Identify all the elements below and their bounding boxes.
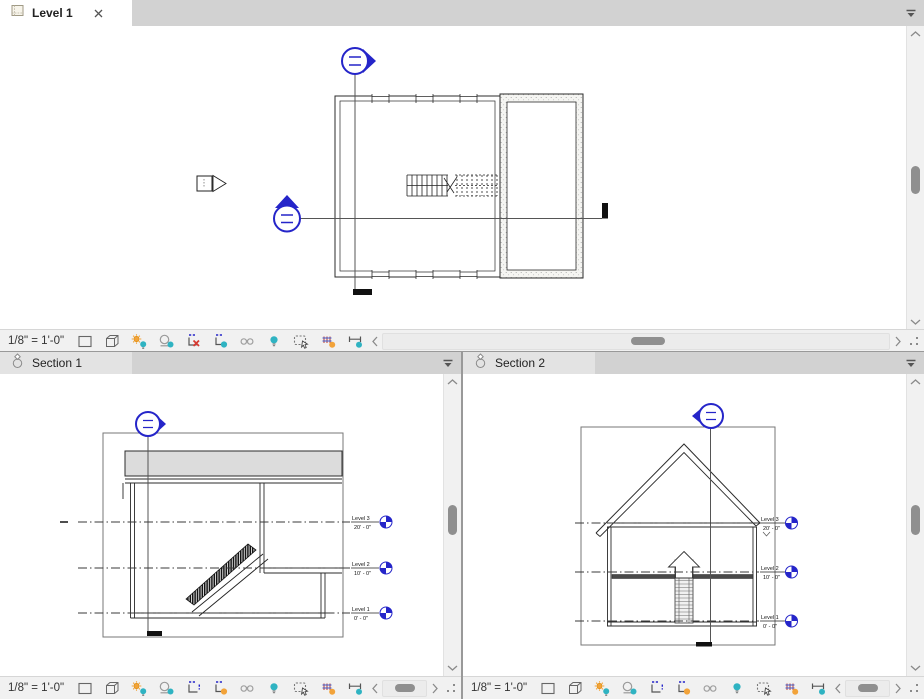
close-tab-icon[interactable] bbox=[94, 9, 103, 18]
svg-text:0' - 0": 0' - 0" bbox=[763, 624, 777, 630]
tab-section-1[interactable]: Section 1 bbox=[0, 352, 132, 374]
tab-section-2[interactable]: Section 2 bbox=[463, 352, 595, 374]
scroll-thumb[interactable] bbox=[448, 505, 457, 535]
scroll-thumb[interactable] bbox=[631, 337, 665, 345]
scroll-up-icon[interactable] bbox=[907, 26, 924, 42]
plan-canvas[interactable] bbox=[0, 26, 906, 330]
show-crop-region-icon[interactable] bbox=[211, 680, 230, 697]
scroll-thumb[interactable] bbox=[911, 505, 920, 535]
pane-collapse-icon[interactable] bbox=[898, 352, 924, 374]
scroll-thumb[interactable] bbox=[395, 684, 415, 692]
sun-path-icon[interactable] bbox=[130, 333, 149, 350]
pane-collapse-icon[interactable] bbox=[898, 0, 924, 26]
crop-view-icon[interactable] bbox=[647, 680, 666, 697]
scroll-up-icon[interactable] bbox=[907, 374, 924, 390]
show-crop-region-icon[interactable] bbox=[211, 333, 230, 350]
section-line[interactable] bbox=[696, 428, 712, 647]
scroll-track[interactable] bbox=[845, 680, 890, 697]
vertical-scrollbar[interactable] bbox=[906, 26, 924, 330]
section2-stair[interactable] bbox=[669, 552, 700, 624]
scroll-thumb[interactable] bbox=[858, 684, 878, 692]
horizontal-scrollbar[interactable] bbox=[830, 680, 905, 697]
section1-canvas[interactable]: Level 3 20' - 0" Level 2 10' - 0" Level … bbox=[0, 374, 444, 676]
resize-grip[interactable] bbox=[445, 682, 458, 695]
sun-path-icon[interactable] bbox=[130, 680, 149, 697]
pane-collapse-icon[interactable] bbox=[435, 352, 461, 374]
show-crop-region-icon[interactable] bbox=[674, 680, 693, 697]
visual-style-icon[interactable] bbox=[103, 680, 122, 697]
scroll-track[interactable] bbox=[382, 680, 427, 697]
visual-style-icon[interactable] bbox=[103, 333, 122, 350]
plan-windows-bottom[interactable] bbox=[372, 270, 477, 279]
reveal-constraints-icon[interactable] bbox=[809, 680, 828, 697]
temporary-hide-isolate-icon[interactable] bbox=[238, 680, 257, 697]
shadows-icon[interactable] bbox=[157, 680, 176, 697]
section-marker[interactable] bbox=[692, 404, 723, 428]
reveal-hidden-elements-icon[interactable] bbox=[265, 333, 284, 350]
scroll-left-icon[interactable] bbox=[367, 681, 382, 696]
detail-level-icon[interactable] bbox=[76, 333, 95, 350]
section2-canvas[interactable]: Level 3 20' - 0" Level 2 10' - 0" Level … bbox=[463, 374, 907, 676]
tab-bar-section2: Section 2 bbox=[463, 352, 924, 375]
vcb-icons-section2 bbox=[539, 680, 828, 697]
view-control-bar-plan: 1/8" = 1'-0" bbox=[0, 329, 924, 352]
tab-level-1[interactable]: Level 1 bbox=[0, 0, 132, 26]
pane-section-1: Section 1 bbox=[0, 352, 461, 699]
scroll-down-icon[interactable] bbox=[444, 660, 461, 676]
horizontal-scrollbar[interactable] bbox=[367, 680, 442, 697]
view-scale-button[interactable]: 1/8" = 1'-0" bbox=[471, 682, 527, 694]
reveal-hidden-elements-icon[interactable] bbox=[265, 680, 284, 697]
section1-stair[interactable] bbox=[186, 544, 268, 616]
view-scale-button[interactable]: 1/8" = 1'-0" bbox=[8, 682, 64, 694]
plan-building[interactable] bbox=[335, 94, 583, 278]
level-datum-1[interactable]: Level 1 0' - 0" bbox=[78, 607, 392, 622]
section-marker-icon bbox=[473, 353, 488, 374]
scroll-right-icon[interactable] bbox=[890, 681, 905, 696]
analytical-model-icon[interactable] bbox=[319, 333, 338, 350]
detail-level-icon[interactable] bbox=[76, 680, 95, 697]
svg-text:10' - 0": 10' - 0" bbox=[763, 575, 780, 581]
scroll-down-icon[interactable] bbox=[907, 660, 924, 676]
shadows-icon[interactable] bbox=[620, 680, 639, 697]
revit-view-workspace: Level 1 bbox=[0, 0, 924, 699]
svg-text:Level 2: Level 2 bbox=[761, 566, 779, 572]
resize-grip[interactable] bbox=[908, 682, 921, 695]
section-marker-left[interactable] bbox=[274, 195, 300, 232]
svg-text:Level 1: Level 1 bbox=[352, 607, 370, 613]
svg-text:Level 3: Level 3 bbox=[352, 516, 370, 522]
scroll-left-icon[interactable] bbox=[830, 681, 845, 696]
vcb-icons-plan bbox=[76, 333, 365, 350]
svg-text:0' - 0": 0' - 0" bbox=[354, 616, 368, 622]
scroll-left-icon[interactable] bbox=[367, 334, 382, 349]
floor-plan-icon bbox=[10, 3, 25, 23]
section-marker-top[interactable] bbox=[342, 48, 376, 74]
svg-text:20' - 0": 20' - 0" bbox=[763, 526, 780, 532]
svg-text:Level 3: Level 3 bbox=[761, 517, 779, 523]
analytical-model-icon[interactable] bbox=[319, 680, 338, 697]
tab-label: Section 2 bbox=[495, 356, 545, 370]
temporary-hide-isolate-icon[interactable] bbox=[238, 333, 257, 350]
scroll-thumb[interactable] bbox=[911, 166, 920, 194]
tab-label: Section 1 bbox=[32, 356, 82, 370]
tab-bar-plan: Level 1 bbox=[0, 0, 924, 27]
section1-building[interactable] bbox=[123, 451, 342, 618]
view-scale-button[interactable]: 1/8" = 1'-0" bbox=[8, 335, 64, 347]
elevation-marker[interactable] bbox=[197, 176, 226, 192]
tab-label: Level 1 bbox=[32, 6, 73, 20]
reveal-hidden-elements-icon[interactable] bbox=[728, 680, 747, 697]
horizontal-scrollbar[interactable] bbox=[367, 333, 905, 350]
svg-text:10' - 0": 10' - 0" bbox=[354, 571, 371, 577]
vertical-scrollbar[interactable] bbox=[906, 374, 924, 676]
view-control-bar-section2: 1/8" = 1'-0" bbox=[463, 676, 924, 699]
svg-text:Level 1: Level 1 bbox=[761, 615, 779, 621]
scroll-down-icon[interactable] bbox=[907, 314, 924, 330]
pane-floor-plan: Level 1 bbox=[0, 0, 924, 352]
reveal-constraints-icon[interactable] bbox=[346, 333, 365, 350]
vcb-icons-section1 bbox=[76, 680, 365, 697]
reveal-constraints-icon[interactable] bbox=[346, 680, 365, 697]
scroll-track[interactable] bbox=[907, 390, 924, 660]
shadows-icon[interactable] bbox=[157, 333, 176, 350]
analytical-model-icon[interactable] bbox=[782, 680, 801, 697]
level-datum-3[interactable]: Level 3 20' - 0" bbox=[60, 516, 392, 531]
scroll-right-icon[interactable] bbox=[890, 334, 905, 349]
detail-level-icon[interactable] bbox=[539, 680, 558, 697]
temporary-view-properties-icon[interactable] bbox=[292, 680, 311, 697]
temporary-hide-isolate-icon[interactable] bbox=[701, 680, 720, 697]
svg-text:20' - 0": 20' - 0" bbox=[354, 525, 371, 531]
plan-windows-top[interactable] bbox=[372, 94, 477, 103]
scroll-track[interactable] bbox=[907, 42, 924, 314]
scroll-up-icon[interactable] bbox=[444, 374, 461, 390]
vertical-scrollbar[interactable] bbox=[443, 374, 461, 676]
scroll-track[interactable] bbox=[382, 333, 890, 350]
pane-section-2: Section 2 bbox=[463, 352, 924, 699]
crop-view-icon[interactable] bbox=[184, 680, 203, 697]
visual-style-icon[interactable] bbox=[566, 680, 585, 697]
section-marker-icon bbox=[10, 353, 25, 374]
temporary-view-properties-icon[interactable] bbox=[292, 333, 311, 350]
scroll-right-icon[interactable] bbox=[427, 681, 442, 696]
resize-grip[interactable] bbox=[908, 335, 921, 348]
section-marker[interactable] bbox=[136, 412, 166, 436]
temporary-view-properties-icon[interactable] bbox=[755, 680, 774, 697]
crop-view-icon[interactable] bbox=[184, 333, 203, 350]
svg-text:Level 2: Level 2 bbox=[352, 562, 370, 568]
view-control-bar-section1: 1/8" = 1'-0" bbox=[0, 676, 461, 699]
sun-path-icon[interactable] bbox=[593, 680, 612, 697]
tab-bar-section1: Section 1 bbox=[0, 352, 461, 375]
scroll-track[interactable] bbox=[444, 390, 461, 660]
